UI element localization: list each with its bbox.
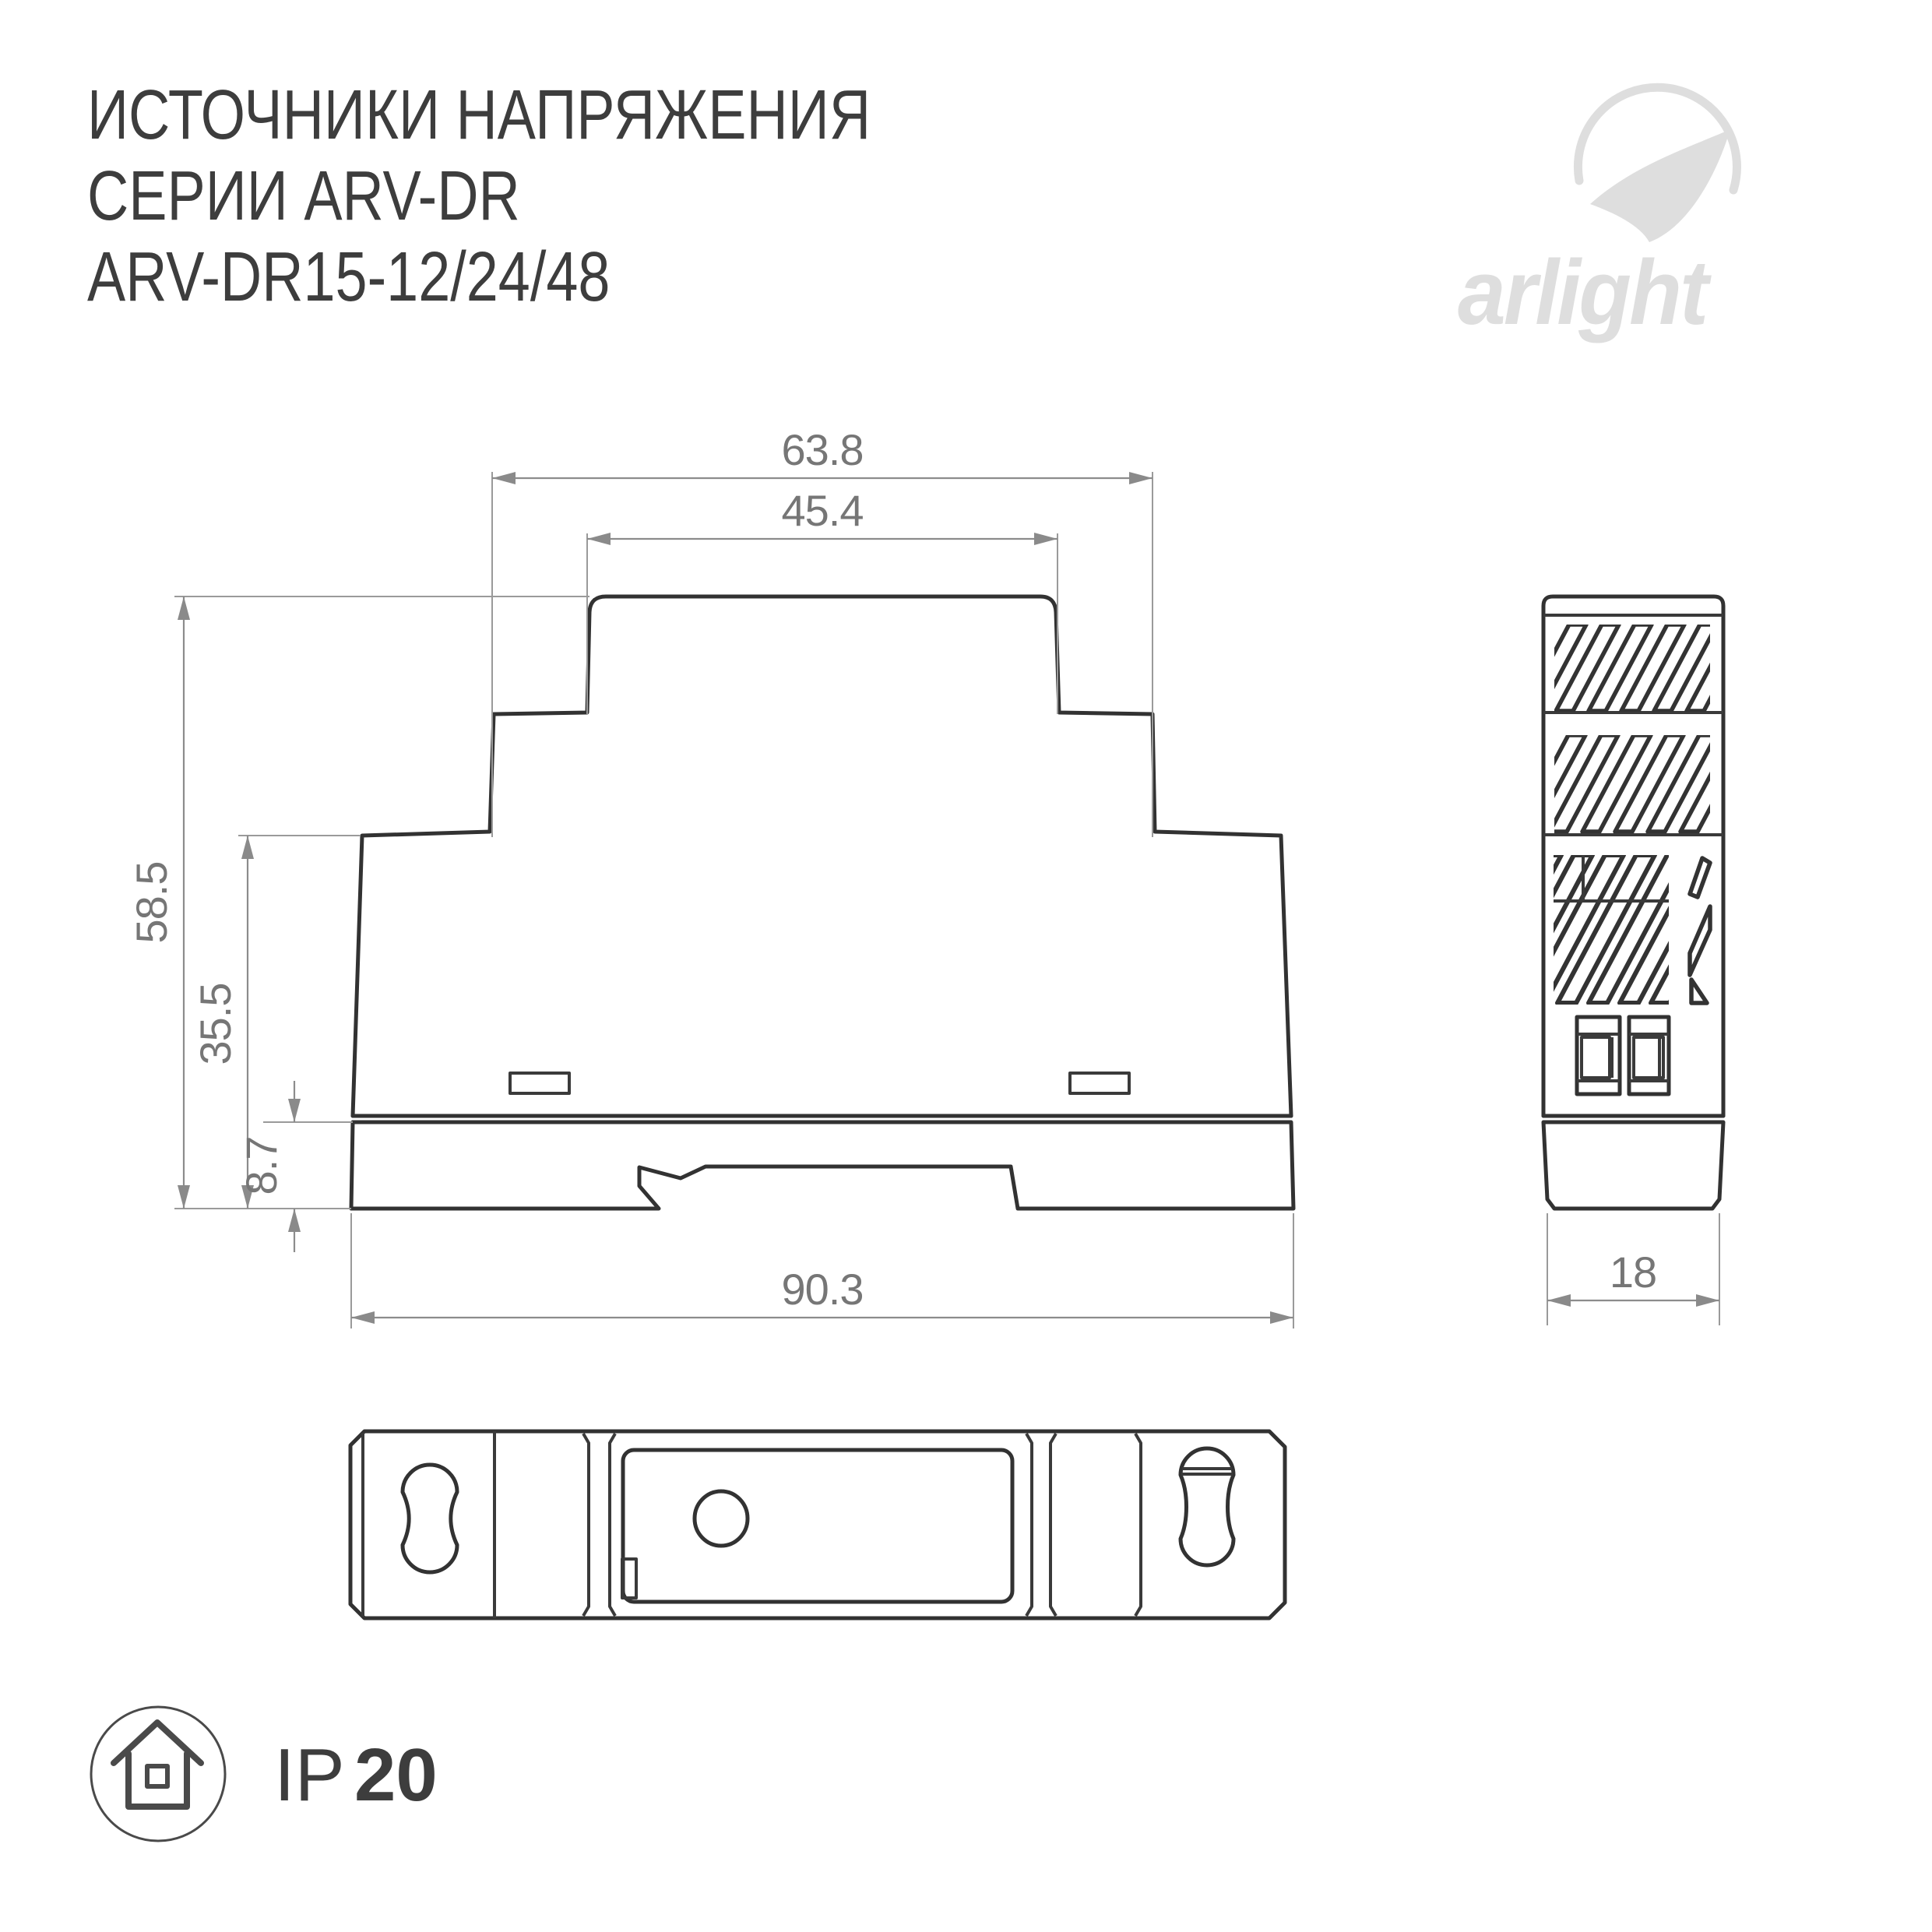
bottom-keyhole-left (403, 1465, 457, 1572)
title-line-2: СЕРИИ ARV-DR (87, 156, 871, 237)
bottom-view (350, 1431, 1285, 1618)
title-line-1: ИСТОЧНИКИ НАПРЯЖЕНИЯ (87, 75, 871, 156)
dim-outer-top: 63.8 (782, 425, 864, 474)
front-body-outline (353, 596, 1291, 1116)
house-icon (114, 1723, 201, 1807)
bottom-label-plate (623, 1450, 1012, 1602)
front-dimensions: 63.8 45.4 58.5 35.5 (127, 425, 1293, 1328)
bottom-hole-center (695, 1491, 748, 1546)
front-slot-right (1070, 1073, 1129, 1093)
bottom-outline (350, 1431, 1285, 1618)
ip-value: 20 (354, 1733, 438, 1817)
side-vents-middle (1517, 735, 1782, 832)
dim-depth: 18 (1610, 1248, 1656, 1297)
side-vents-top (1523, 625, 1782, 711)
logo-wordmark: arlight (1458, 240, 1706, 346)
dim-total-height: 58.5 (127, 862, 176, 944)
logo-swoosh-icon (1578, 87, 1737, 242)
ip-rating-badge: IP 20 (91, 1707, 438, 1841)
dim-clip-height: 8.7 (237, 1137, 286, 1195)
side-switch-windows (1577, 1017, 1669, 1094)
bottom-keyhole-right (1181, 1448, 1233, 1565)
ip-prefix: IP (274, 1733, 345, 1817)
side-dimension: 18 (1547, 1213, 1719, 1325)
dim-body-height: 35.5 (191, 984, 240, 1065)
side-vents-small (1690, 858, 1710, 1003)
front-slot-left (510, 1073, 569, 1093)
side-din-base (1543, 1122, 1723, 1209)
datasheet-page: 63.8 45.4 58.5 35.5 (0, 0, 1932, 1932)
page-title: ИСТОЧНИКИ НАПРЯЖЕНИЯ СЕРИИ ARV-DR ARV-DR… (87, 75, 871, 318)
dim-inner-top: 45.4 (782, 486, 864, 535)
title-line-3: ARV-DR15-12/24/48 (87, 237, 871, 318)
dim-width: 90.3 (782, 1265, 864, 1314)
front-din-clip (351, 1122, 1293, 1209)
side-view: 18 (1464, 596, 1782, 1325)
